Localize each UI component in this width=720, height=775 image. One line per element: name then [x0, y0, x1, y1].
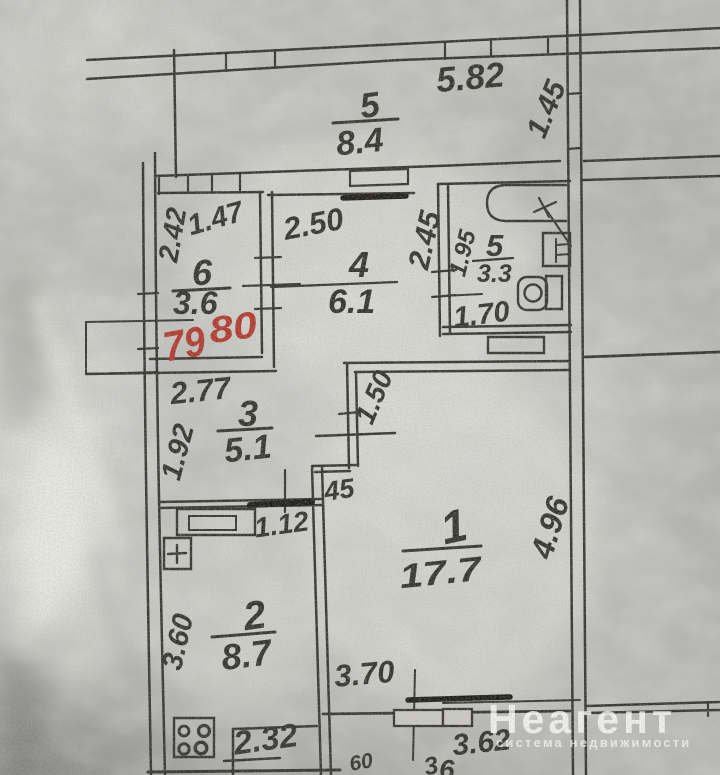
svg-text:система недвижимости: система недвижимости: [496, 735, 692, 750]
svg-text:3.70: 3.70: [333, 654, 396, 694]
svg-text:1.70: 1.70: [452, 296, 512, 335]
svg-text:1.45: 1.45: [520, 75, 573, 143]
svg-text:5.1: 5.1: [222, 428, 273, 471]
svg-text:1.92: 1.92: [155, 421, 201, 484]
svg-text:45: 45: [321, 473, 357, 507]
svg-text:8.4: 8.4: [334, 121, 385, 164]
svg-text:2.32: 2.32: [230, 716, 300, 762]
svg-text:8.7: 8.7: [219, 631, 276, 678]
svg-text:6.1: 6.1: [328, 283, 375, 321]
svg-text:60: 60: [348, 749, 375, 775]
svg-text:2.77: 2.77: [168, 370, 234, 411]
svg-text:2.42: 2.42: [152, 205, 192, 265]
svg-text:6: 6: [439, 754, 455, 775]
svg-text:79: 79: [159, 317, 209, 371]
svg-text:5.82: 5.82: [435, 55, 507, 100]
svg-text:4: 4: [348, 244, 369, 285]
svg-text:3.3: 3.3: [477, 260, 512, 288]
svg-text:80: 80: [206, 304, 260, 351]
